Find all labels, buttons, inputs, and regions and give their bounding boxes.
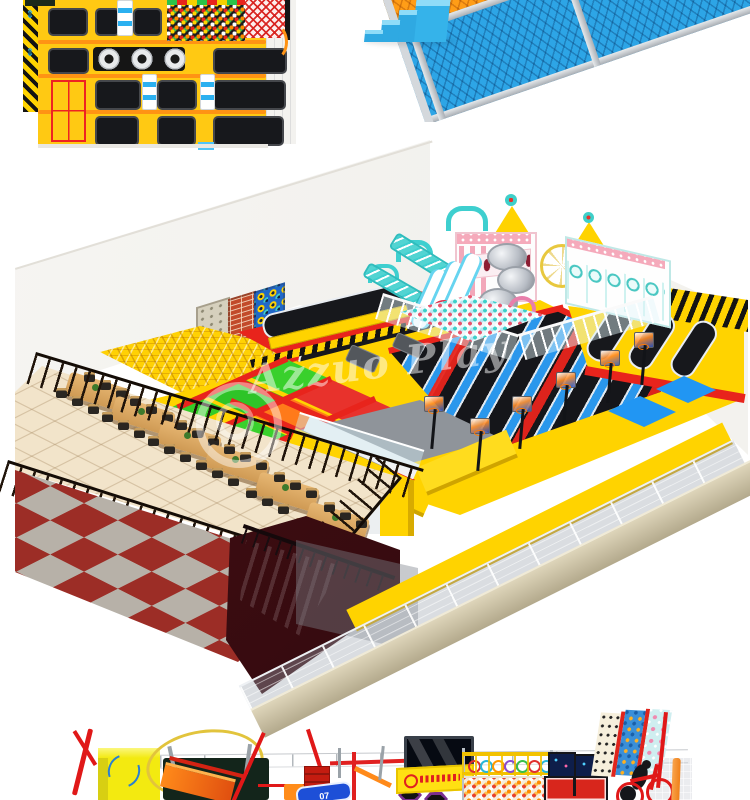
red-pole <box>72 728 93 795</box>
inflatable-digits: 07 <box>319 790 330 800</box>
tower-bars <box>462 752 554 778</box>
red-pole <box>352 752 356 800</box>
hoop-pole <box>518 409 524 449</box>
basketball-hoop <box>634 332 654 386</box>
hoop-pole <box>562 385 568 425</box>
chair <box>118 420 129 430</box>
render-main-isometric[interactable]: Azzuo Play <box>0 0 750 800</box>
chair <box>148 436 159 446</box>
chair <box>290 480 301 490</box>
sign-red-text <box>420 774 460 783</box>
hoop-pole <box>430 409 436 449</box>
orange-bar <box>354 766 392 788</box>
roof-fan-icon <box>583 212 594 223</box>
rider-head <box>642 760 651 769</box>
chair <box>196 460 207 470</box>
render-bottom-strip-crop[interactable]: 07 <box>0 700 750 800</box>
ball-pit <box>464 776 554 800</box>
chair <box>102 412 113 422</box>
roof-fan-icon <box>505 194 517 206</box>
court-divider <box>573 778 576 796</box>
chair <box>164 444 175 454</box>
roof-dot-band <box>457 234 531 244</box>
chair <box>134 428 145 438</box>
chair <box>228 476 239 486</box>
sign-logo-mark <box>404 774 418 789</box>
orange-pole <box>671 758 681 800</box>
truss-arch-cap <box>446 206 488 231</box>
basketball-hoop <box>600 350 620 404</box>
chair <box>306 488 317 498</box>
hoop-pole <box>606 363 612 403</box>
watermark-logo-inner <box>216 402 254 440</box>
block-side <box>98 758 108 800</box>
basketball-hoop <box>556 372 576 426</box>
chair <box>180 452 191 462</box>
basketball-hoop <box>424 396 444 450</box>
chair <box>278 504 289 514</box>
hoop-pole <box>640 345 646 385</box>
basketball-hoop <box>512 396 532 450</box>
basketball-hoop <box>470 418 490 472</box>
gray-post <box>338 748 341 778</box>
chair <box>246 488 257 498</box>
game-panel <box>548 752 576 778</box>
chair <box>212 468 223 478</box>
chair <box>274 472 285 482</box>
product-gallery-page: ⇕ ⇕ <box>0 0 750 800</box>
chair <box>262 496 273 506</box>
hoop-pole <box>476 431 482 471</box>
plant <box>282 484 289 491</box>
chair <box>88 404 99 414</box>
